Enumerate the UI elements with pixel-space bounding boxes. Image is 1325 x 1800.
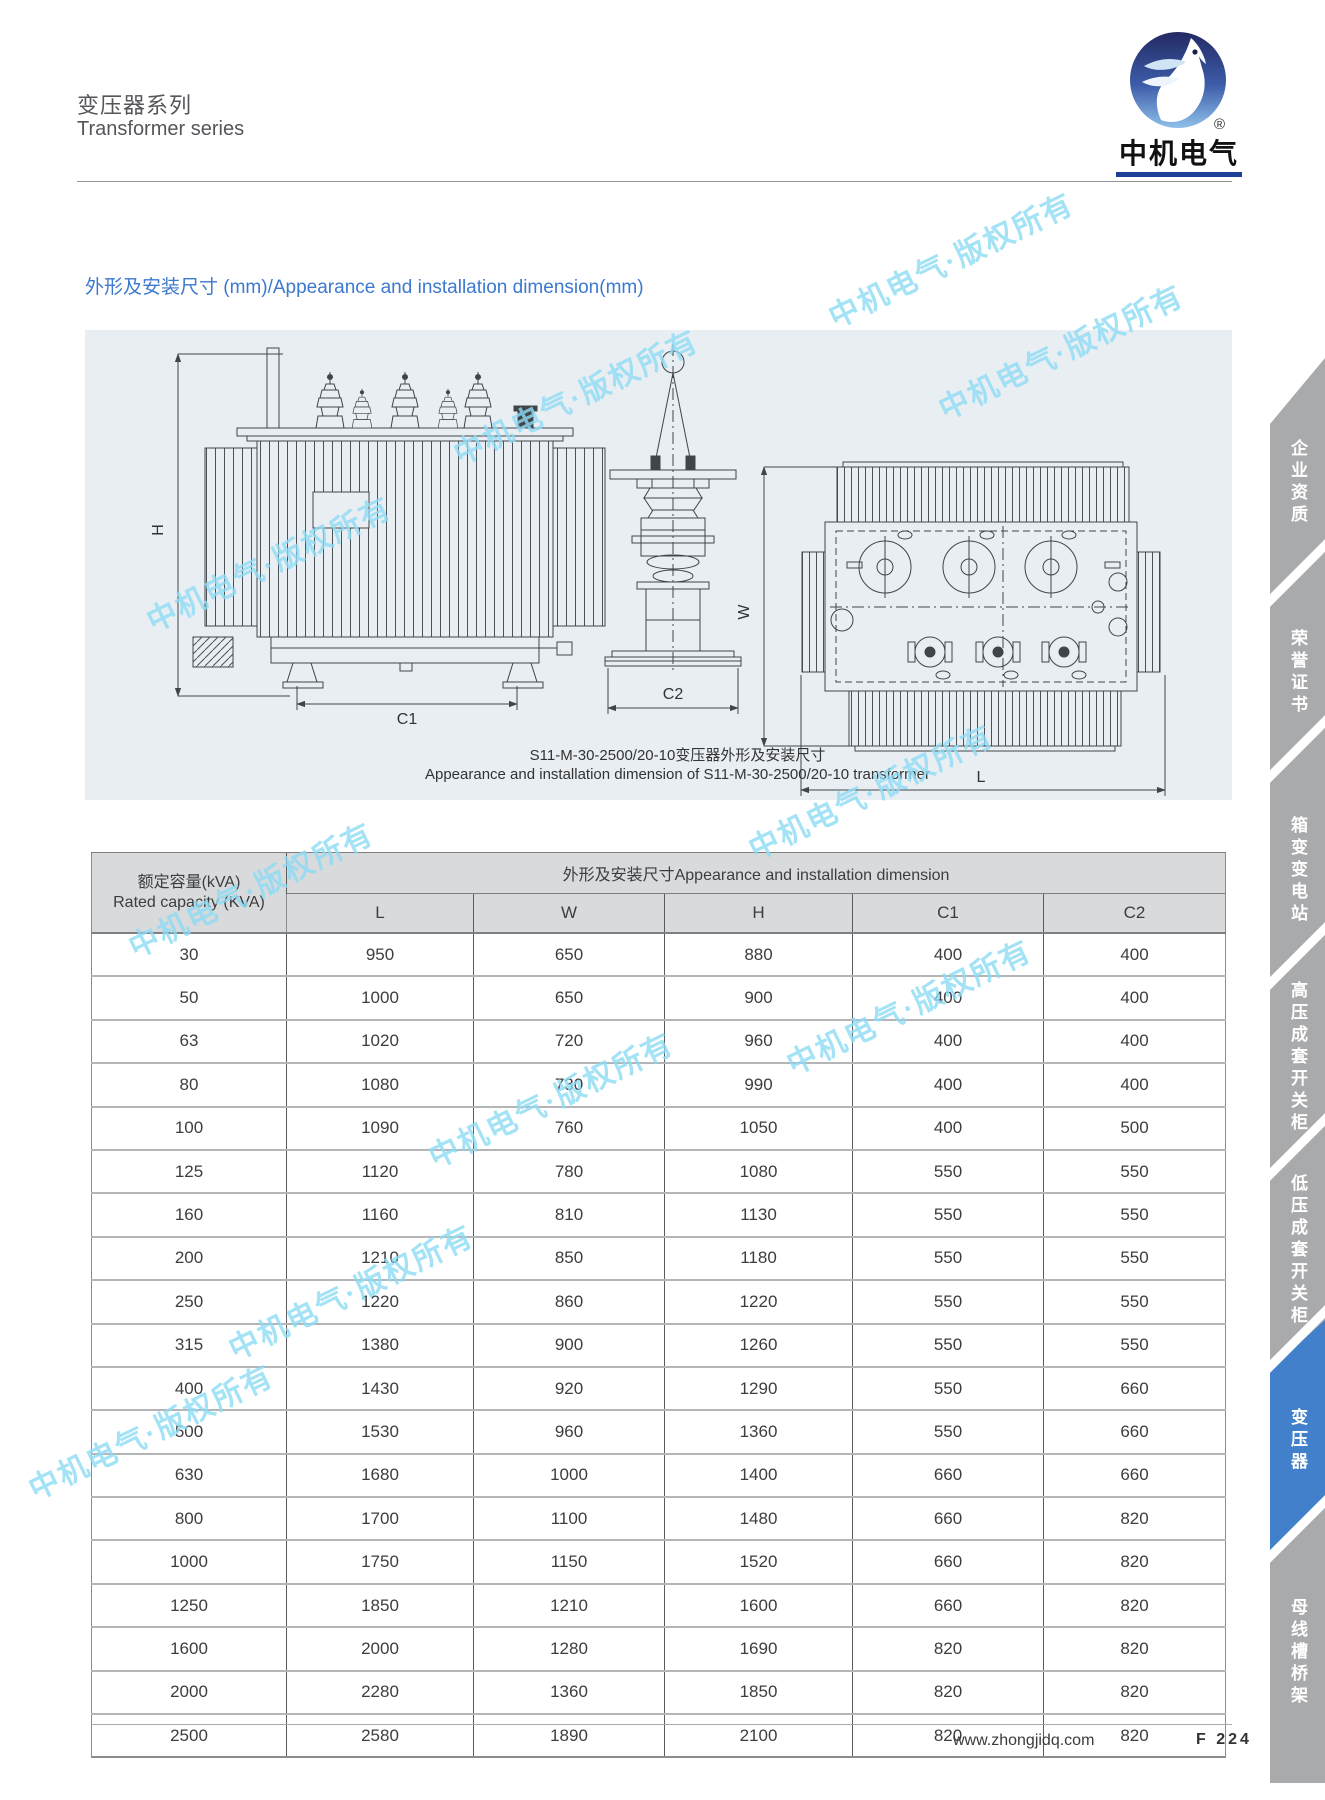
cell: 1600 — [665, 1584, 853, 1627]
drawing-panel: H — [85, 330, 1232, 800]
cell: 400 — [853, 1063, 1044, 1106]
cell: 660 — [853, 1584, 1044, 1627]
registered-trademark: ® — [1214, 116, 1225, 133]
cell: 1050 — [665, 1107, 853, 1150]
section-heading: 外形及安装尺寸 (mm)/Appearance and installation… — [85, 272, 644, 299]
cell: 1360 — [474, 1671, 665, 1714]
cell: 550 — [1044, 1150, 1226, 1193]
cell: 1100 — [474, 1497, 665, 1540]
table-row: 31513809001260550550 — [92, 1324, 1226, 1367]
cell: 730 — [474, 1063, 665, 1106]
cell: 2500 — [92, 1714, 287, 1757]
front-view: H — [150, 348, 605, 728]
cell: 1850 — [287, 1584, 474, 1627]
cell: 550 — [1044, 1237, 1226, 1280]
cell: 650 — [474, 976, 665, 1019]
column-header-capacity-en: Rated capacity (KVA) — [92, 893, 286, 913]
cell: 920 — [474, 1367, 665, 1410]
cell: 1090 — [287, 1107, 474, 1150]
cell: 1520 — [665, 1540, 853, 1583]
cell: 550 — [1044, 1280, 1226, 1323]
logo-text: 中机电气 — [1114, 132, 1244, 172]
cell: 960 — [665, 1020, 853, 1063]
table-row: 10010907601050400500 — [92, 1107, 1226, 1150]
sidebar-tab-4[interactable]: 高压成套开关柜 — [1270, 978, 1325, 1138]
cell: 50 — [92, 976, 287, 1019]
cell: 63 — [92, 1020, 287, 1063]
cell: 550 — [853, 1410, 1044, 1453]
cell: 1850 — [665, 1671, 853, 1714]
cell: 1210 — [474, 1584, 665, 1627]
dim-label-h: H — [150, 524, 167, 536]
cell: 2280 — [287, 1671, 474, 1714]
cell: 550 — [853, 1324, 1044, 1367]
cell: 1690 — [665, 1627, 853, 1670]
cell: 2100 — [665, 1714, 853, 1757]
cell: 990 — [665, 1063, 853, 1106]
cell: 550 — [853, 1193, 1044, 1236]
cell: 820 — [1044, 1671, 1226, 1714]
cell: 1360 — [665, 1410, 853, 1453]
sidebar-tab-3[interactable]: 箱变变电站 — [1270, 788, 1325, 953]
cell: 1160 — [287, 1193, 474, 1236]
cell: 125 — [92, 1150, 287, 1193]
cell: 1080 — [287, 1063, 474, 1106]
cell: 100 — [92, 1107, 287, 1150]
cell: 30 — [92, 933, 287, 976]
cell: 1750 — [287, 1540, 474, 1583]
cell: 1260 — [665, 1324, 853, 1367]
transformer-technical-drawing: H — [85, 330, 1232, 800]
cell: 820 — [1044, 1497, 1226, 1540]
page-title-zh: 变压器系列 — [77, 88, 192, 120]
cell: 200 — [92, 1237, 287, 1280]
cell: 1220 — [287, 1280, 474, 1323]
cell: 630 — [92, 1454, 287, 1497]
table-row: 50015309601360550660 — [92, 1410, 1226, 1453]
cell: 1080 — [665, 1150, 853, 1193]
dim-label-c1: C1 — [397, 711, 418, 728]
header-divider — [77, 181, 1232, 182]
cell: 250 — [92, 1280, 287, 1323]
cell: 550 — [853, 1237, 1044, 1280]
cell: 1250 — [92, 1584, 287, 1627]
cell: 1120 — [287, 1150, 474, 1193]
table-row: 40014309201290550660 — [92, 1367, 1226, 1410]
dim-label-w: W — [736, 604, 753, 620]
cell: 1290 — [665, 1367, 853, 1410]
cell: 1220 — [665, 1280, 853, 1323]
column-header-dim: L — [287, 894, 474, 934]
cell: 1480 — [665, 1497, 853, 1540]
cell: 960 — [474, 1410, 665, 1453]
page-title-en: Transformer series — [77, 118, 244, 141]
cell: 1000 — [287, 976, 474, 1019]
table-row: 1600200012801690820820 — [92, 1627, 1226, 1670]
sidebar-tab-7[interactable]: 母线槽桥架 — [1270, 1568, 1325, 1738]
cell: 80 — [92, 1063, 287, 1106]
table-body: 3095065088040040050100065090040040063102… — [92, 933, 1226, 1757]
cell: 1150 — [474, 1540, 665, 1583]
cell: 1530 — [287, 1410, 474, 1453]
cell: 650 — [474, 933, 665, 976]
cell: 1000 — [474, 1454, 665, 1497]
sidebar-tab-5[interactable]: 低压成套开关柜 — [1270, 1168, 1325, 1333]
cell: 820 — [1044, 1584, 1226, 1627]
company-logo: ® 中机电气 — [1110, 22, 1250, 182]
column-header-dim: W — [474, 894, 665, 934]
cell: 500 — [1044, 1107, 1226, 1150]
cell: 1020 — [287, 1020, 474, 1063]
table-row: 800170011001480660820 — [92, 1497, 1226, 1540]
cell: 400 — [853, 933, 1044, 976]
cell: 400 — [92, 1367, 287, 1410]
cell: 880 — [665, 933, 853, 976]
sidebar-tab-1[interactable]: 企业资质 — [1270, 408, 1325, 558]
cell: 860 — [474, 1280, 665, 1323]
cell: 900 — [665, 976, 853, 1019]
cell: 550 — [1044, 1324, 1226, 1367]
table-row: 30950650880400400 — [92, 933, 1226, 976]
cell: 900 — [474, 1324, 665, 1367]
cell: 800 — [92, 1497, 287, 1540]
cell: 1280 — [474, 1627, 665, 1670]
cell: 400 — [1044, 1020, 1226, 1063]
table-row: 630168010001400660660 — [92, 1454, 1226, 1497]
cell: 400 — [1044, 976, 1226, 1019]
drawing-caption-en: Appearance and installation dimension of… — [125, 765, 1230, 784]
cell: 850 — [474, 1237, 665, 1280]
cell: 820 — [1044, 1627, 1226, 1670]
footer-divider — [91, 1724, 1232, 1725]
column-header-capacity-zh: 额定容量(kVA) — [92, 873, 286, 893]
cell: 550 — [1044, 1193, 1226, 1236]
table-row: 20012108501180550550 — [92, 1237, 1226, 1280]
cell: 660 — [853, 1497, 1044, 1540]
drawing-caption: S11-M-30-2500/20-10变压器外形及安装尺寸 Appearance… — [125, 746, 1230, 784]
table-row: 1000175011501520660820 — [92, 1540, 1226, 1583]
column-header-dim: C2 — [1044, 894, 1226, 934]
sidebar: 企业资质荣誉证书箱变变电站高压成套开关柜低压成套开关柜变压器母线槽桥架 — [1270, 358, 1325, 1783]
footer-page-number: F 224 — [1196, 1731, 1252, 1749]
cell: 820 — [1044, 1540, 1226, 1583]
cell: 1180 — [665, 1237, 853, 1280]
column-header-dim: H — [665, 894, 853, 934]
cell: 820 — [853, 1671, 1044, 1714]
cell: 660 — [1044, 1410, 1226, 1453]
side-view: C2 — [605, 344, 741, 714]
logo-underline — [1116, 172, 1242, 177]
cell: 2580 — [287, 1714, 474, 1757]
cell: 1600 — [92, 1627, 287, 1670]
table-row: 501000650900400400 — [92, 976, 1226, 1019]
catalog-page: 变压器系列 Transformer series ® 中机电气 外形及安装尺寸 … — [0, 0, 1325, 1800]
cell: 660 — [1044, 1454, 1226, 1497]
cell: 400 — [853, 976, 1044, 1019]
table-row: 631020720960400400 — [92, 1020, 1226, 1063]
cell: 2000 — [92, 1671, 287, 1714]
table-row: 1250185012101600660820 — [92, 1584, 1226, 1627]
cell: 950 — [287, 933, 474, 976]
cell: 2000 — [287, 1627, 474, 1670]
table-row: 25012208601220550550 — [92, 1280, 1226, 1323]
footer-website[interactable]: www.zhongjidq.com — [953, 1732, 1094, 1750]
cell: 400 — [853, 1107, 1044, 1150]
sidebar-tab-6[interactable]: 变压器 — [1270, 1373, 1325, 1508]
cell: 550 — [853, 1280, 1044, 1323]
cell: 1890 — [474, 1714, 665, 1757]
cell: 1000 — [92, 1540, 287, 1583]
cell: 1210 — [287, 1237, 474, 1280]
drawing-caption-zh: S11-M-30-2500/20-10变压器外形及安装尺寸 — [125, 746, 1230, 765]
column-header-dim: C1 — [853, 894, 1044, 934]
cell: 1680 — [287, 1454, 474, 1497]
column-header-capacity: 额定容量(kVA) Rated capacity (KVA) — [92, 853, 287, 934]
table-row: 16011608101130550550 — [92, 1193, 1226, 1236]
cell: 1430 — [287, 1367, 474, 1410]
cell: 400 — [853, 1020, 1044, 1063]
cell: 720 — [474, 1020, 665, 1063]
cell: 820 — [853, 1627, 1044, 1670]
cell: 660 — [853, 1540, 1044, 1583]
cell: 660 — [1044, 1367, 1226, 1410]
cell: 315 — [92, 1324, 287, 1367]
copyright-watermark: 中机电气·版权所有 — [820, 179, 1080, 336]
cell: 500 — [92, 1410, 287, 1453]
table-row: 12511207801080550550 — [92, 1150, 1226, 1193]
cell: 1700 — [287, 1497, 474, 1540]
cell: 1400 — [665, 1454, 853, 1497]
cell: 1130 — [665, 1193, 853, 1236]
cell: 160 — [92, 1193, 287, 1236]
dim-label-c2: C2 — [663, 686, 684, 703]
cell: 660 — [853, 1454, 1044, 1497]
table-row: 2000228013601850820820 — [92, 1671, 1226, 1714]
cell: 550 — [853, 1367, 1044, 1410]
column-group-header: 外形及安装尺寸Appearance and installation dimen… — [287, 853, 1226, 894]
cell: 780 — [474, 1150, 665, 1193]
cell: 400 — [1044, 1063, 1226, 1106]
dove-logo-icon — [1128, 30, 1228, 130]
dimension-table: 额定容量(kVA) Rated capacity (KVA) 外形及安装尺寸Ap… — [91, 852, 1226, 1758]
cell: 810 — [474, 1193, 665, 1236]
cell: 550 — [853, 1150, 1044, 1193]
cell: 400 — [1044, 933, 1226, 976]
cell: 760 — [474, 1107, 665, 1150]
cell: 1380 — [287, 1324, 474, 1367]
table-row: 801080730990400400 — [92, 1063, 1226, 1106]
